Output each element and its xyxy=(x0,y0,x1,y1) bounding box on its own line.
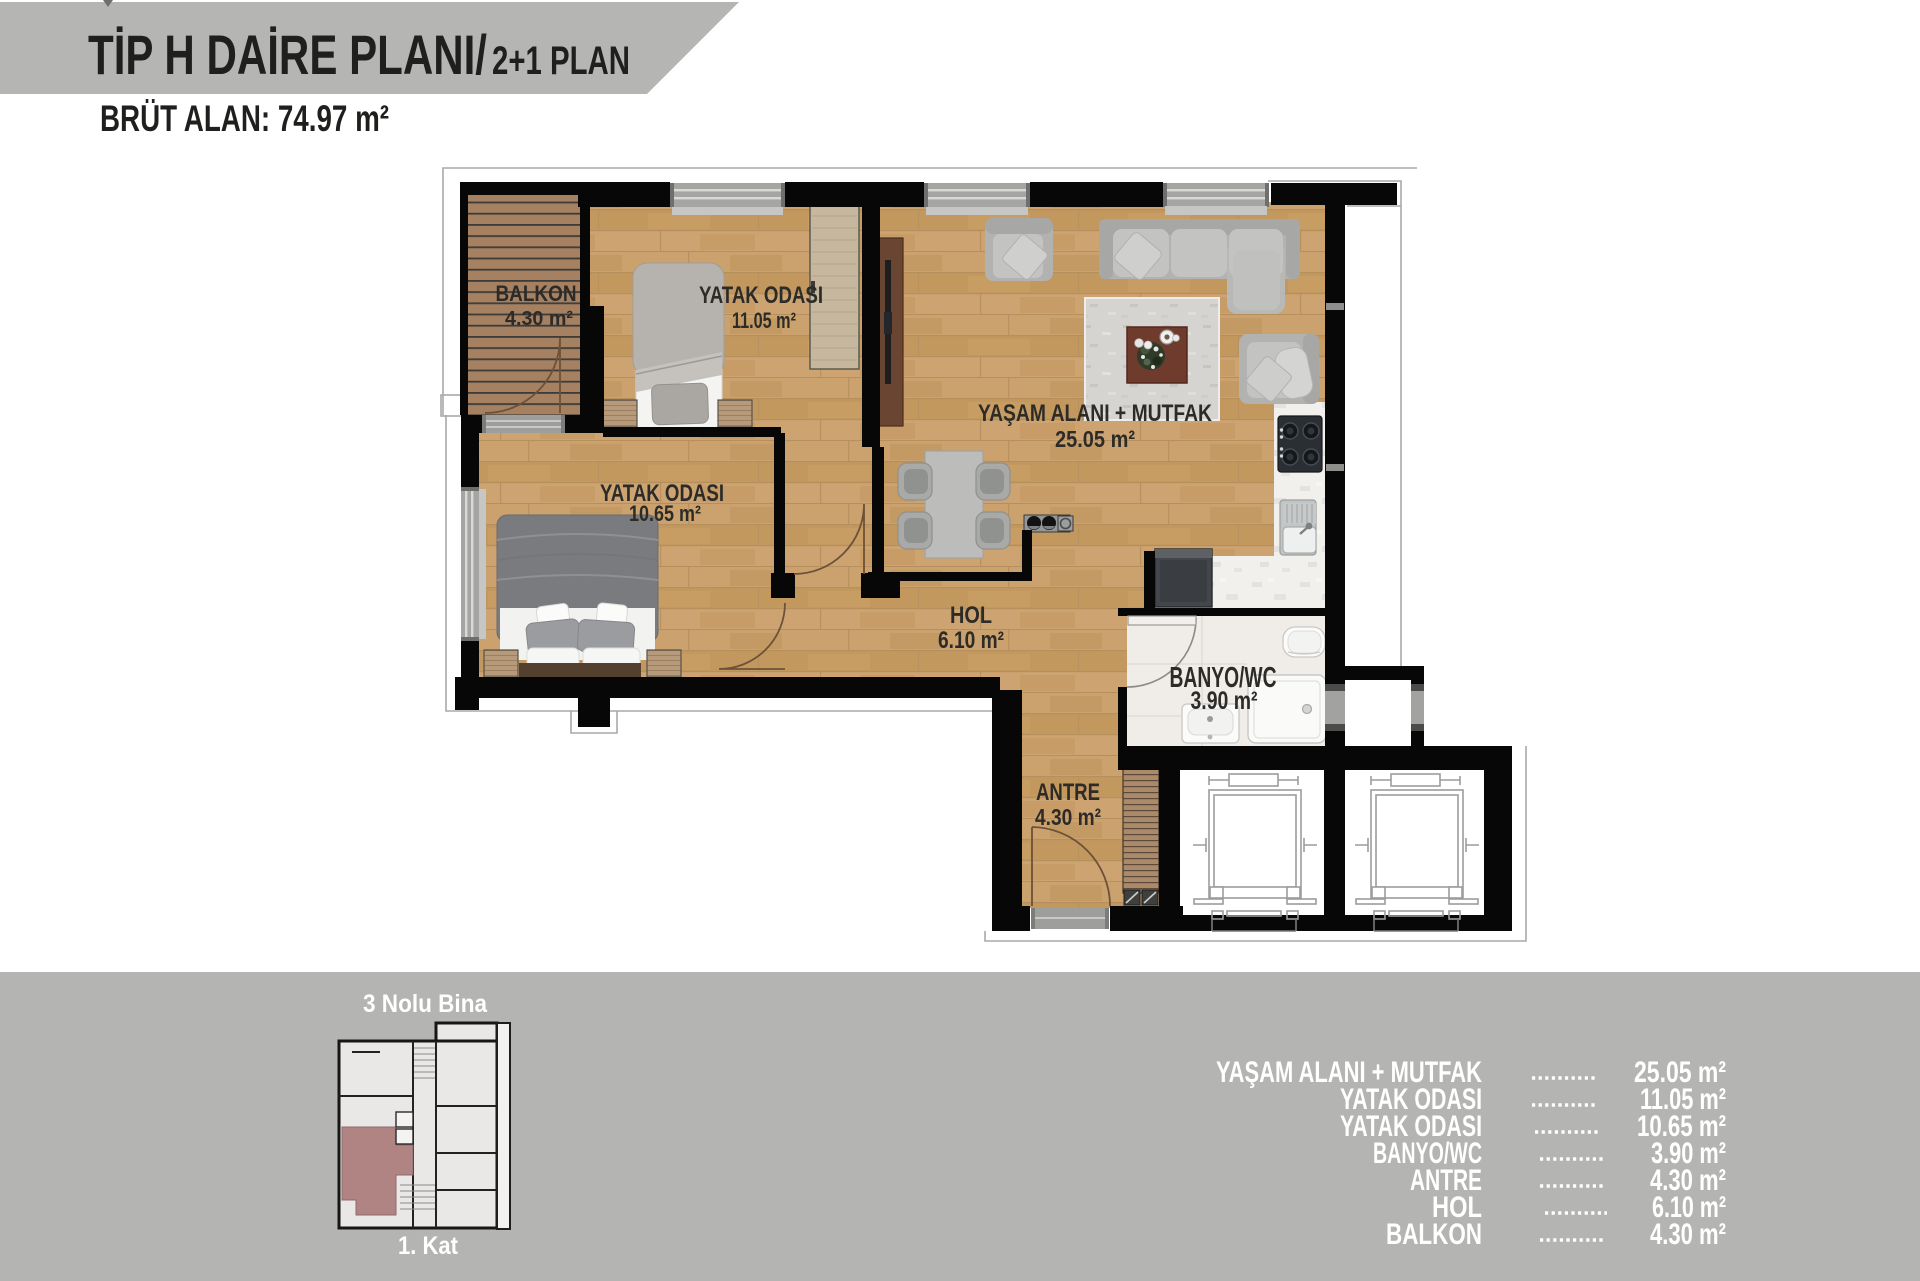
svg-text:10.65 m²: 10.65 m² xyxy=(629,501,701,526)
svg-text:2+1 PLAN: 2+1 PLAN xyxy=(492,39,630,83)
svg-text:4.30 m²: 4.30 m² xyxy=(505,308,573,330)
svg-text:ANTRE: ANTRE xyxy=(1036,779,1100,806)
svg-text:BALKON: BALKON xyxy=(1386,1218,1482,1251)
svg-text:BRÜT ALAN: 74.97 m²: BRÜT ALAN: 74.97 m² xyxy=(100,98,389,139)
svg-text:6.10 m²: 6.10 m² xyxy=(938,627,1004,654)
svg-text:YAŞAM ALANI + MUTFAK: YAŞAM ALANI + MUTFAK xyxy=(978,400,1213,427)
svg-text:3 Nolu Bina: 3 Nolu Bina xyxy=(363,990,488,1018)
svg-text:4.30 m²: 4.30 m² xyxy=(1650,1218,1726,1251)
svg-text:TİP H DAİRE PLANI/: TİP H DAİRE PLANI/ xyxy=(88,23,487,86)
svg-text:11.05 m²: 11.05 m² xyxy=(732,308,796,333)
svg-text:BALKON: BALKON xyxy=(496,281,577,306)
svg-text:1. Kat: 1. Kat xyxy=(398,1232,459,1260)
svg-text:25.05 m²: 25.05 m² xyxy=(1055,426,1135,452)
svg-text:YATAK ODASI: YATAK ODASI xyxy=(699,282,823,309)
svg-text:3.90 m²: 3.90 m² xyxy=(1191,687,1258,715)
svg-text:4.30 m²: 4.30 m² xyxy=(1035,804,1101,830)
svg-text:HOL: HOL xyxy=(950,602,992,629)
